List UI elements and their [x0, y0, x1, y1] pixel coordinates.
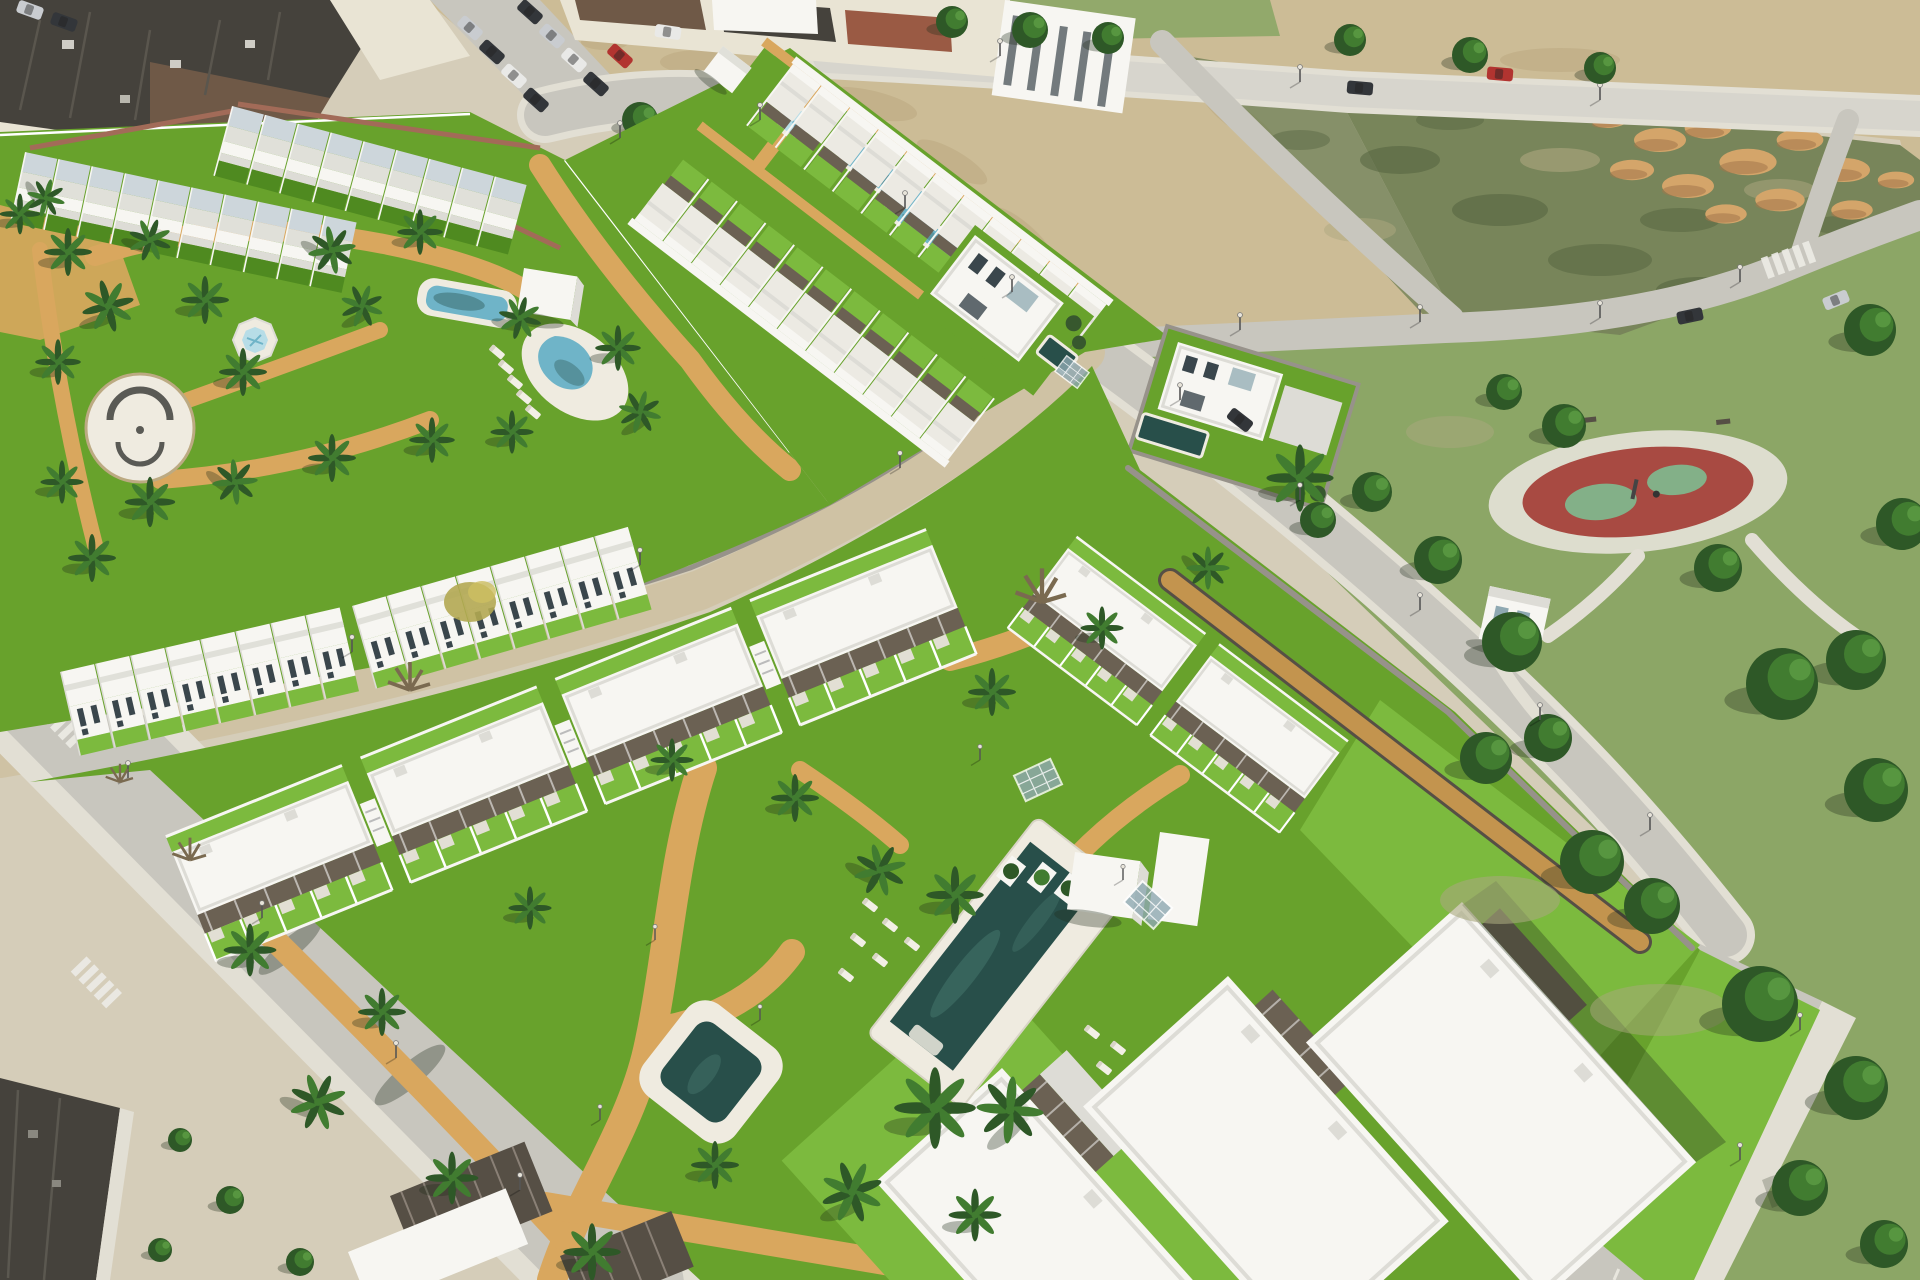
aerial-development-render [0, 0, 1920, 1280]
phase1-logo-plaza [86, 374, 194, 482]
town-tower [992, 0, 1136, 113]
phase1-octagon-fountain [233, 318, 277, 362]
town-white-roof [712, 0, 818, 34]
aerial-render-stage [0, 0, 1920, 1280]
